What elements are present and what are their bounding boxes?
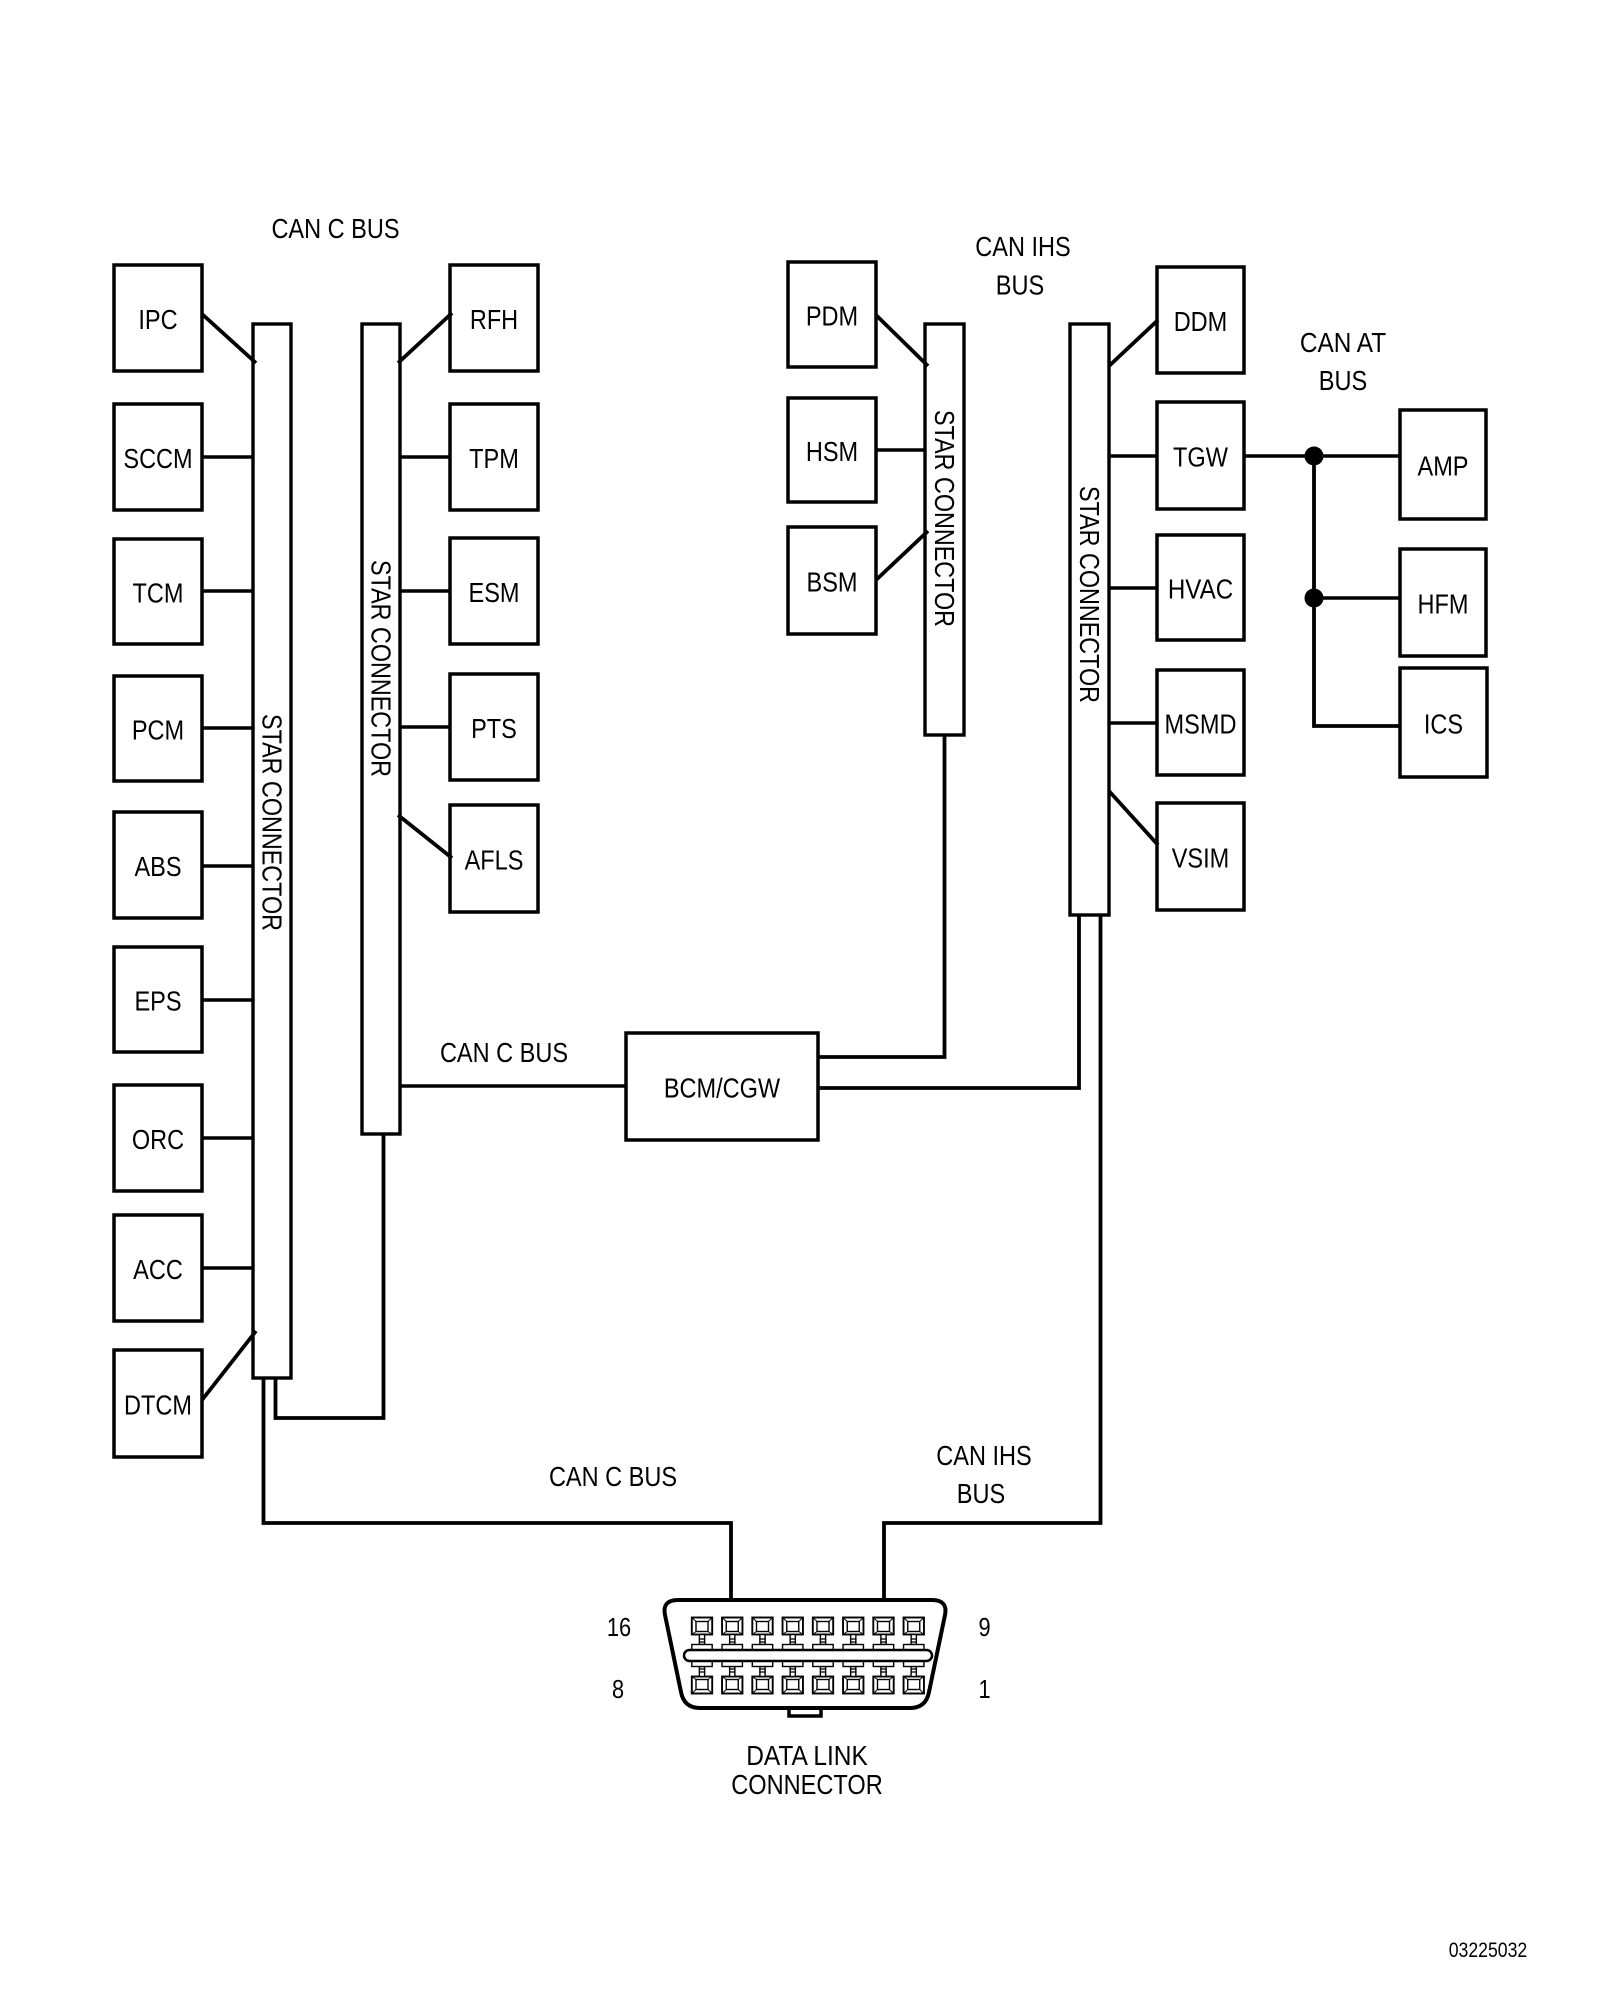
svg-text:PCM: PCM <box>132 715 184 746</box>
svg-text:CAN C BUS: CAN C BUS <box>440 1037 568 1068</box>
svg-text:ACC: ACC <box>133 1254 183 1285</box>
svg-text:SCCM: SCCM <box>123 443 192 474</box>
svg-text:TGW: TGW <box>1173 442 1228 473</box>
svg-text:BUS: BUS <box>996 270 1044 301</box>
svg-text:VSIM: VSIM <box>1172 843 1230 874</box>
svg-text:STAR CONNECTOR: STAR CONNECTOR <box>1074 486 1105 703</box>
svg-text:CAN C BUS: CAN C BUS <box>549 1461 677 1492</box>
svg-text:AMP: AMP <box>1418 451 1469 482</box>
svg-text:ESM: ESM <box>469 577 520 608</box>
svg-text:AFLS: AFLS <box>465 845 524 876</box>
svg-text:CAN IHS: CAN IHS <box>936 1440 1031 1471</box>
svg-text:1: 1 <box>978 1674 990 1704</box>
svg-text:BUS: BUS <box>957 1478 1005 1509</box>
svg-text:CAN IHS: CAN IHS <box>975 231 1070 262</box>
svg-text:DTCM: DTCM <box>124 1390 192 1421</box>
svg-text:TCM: TCM <box>133 578 184 609</box>
svg-text:PDM: PDM <box>806 301 858 332</box>
svg-text:ABS: ABS <box>134 851 181 882</box>
svg-text:STAR CONNECTOR: STAR CONNECTOR <box>929 410 960 627</box>
svg-text:03225032: 03225032 <box>1449 1939 1528 1962</box>
svg-text:BUS: BUS <box>1319 365 1367 396</box>
svg-text:IPC: IPC <box>138 304 177 335</box>
svg-text:STAR CONNECTOR: STAR CONNECTOR <box>366 560 397 777</box>
svg-text:DDM: DDM <box>1174 306 1228 337</box>
svg-text:PTS: PTS <box>471 713 517 744</box>
svg-text:RFH: RFH <box>470 304 518 335</box>
svg-text:CONNECTOR: CONNECTOR <box>731 1769 883 1800</box>
svg-text:16: 16 <box>607 1612 631 1642</box>
svg-text:MSMD: MSMD <box>1165 709 1237 740</box>
svg-text:BSM: BSM <box>807 567 858 598</box>
svg-text:ORC: ORC <box>132 1124 184 1155</box>
svg-text:CAN AT: CAN AT <box>1300 327 1386 358</box>
svg-text:DATA LINK: DATA LINK <box>746 1740 868 1771</box>
svg-text:8: 8 <box>612 1674 624 1704</box>
svg-text:HSM: HSM <box>806 436 858 467</box>
svg-text:HFM: HFM <box>1418 589 1469 620</box>
svg-text:BCM/CGW: BCM/CGW <box>664 1073 781 1104</box>
svg-text:9: 9 <box>978 1612 990 1642</box>
svg-text:EPS: EPS <box>134 986 181 1017</box>
svg-text:HVAC: HVAC <box>1168 574 1233 605</box>
svg-text:ICS: ICS <box>1424 709 1463 740</box>
svg-text:TPM: TPM <box>469 443 519 474</box>
svg-text:STAR CONNECTOR: STAR CONNECTOR <box>257 714 288 931</box>
svg-text:CAN C BUS: CAN C BUS <box>271 213 399 244</box>
